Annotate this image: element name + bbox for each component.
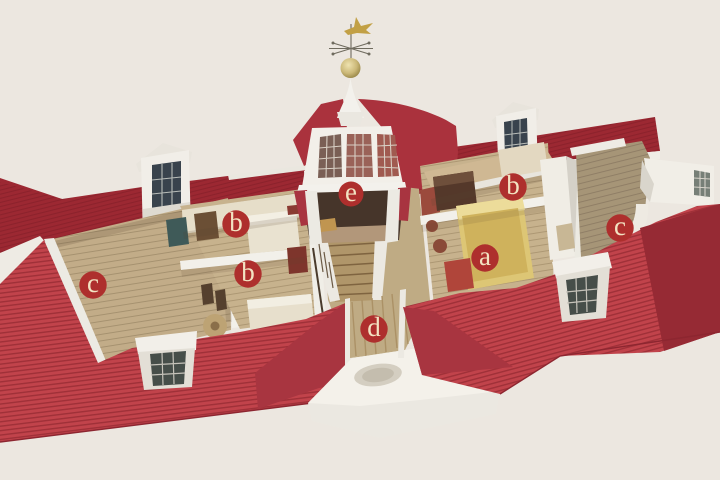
svg-text:a: a [479,241,491,271]
svg-text:c: c [87,268,99,298]
svg-text:e: e [345,177,357,207]
svg-text:d: d [367,312,381,342]
svg-text:b: b [229,207,243,237]
svg-text:b: b [506,170,520,200]
svg-text:b: b [241,257,255,287]
svg-text:c: c [614,211,626,241]
